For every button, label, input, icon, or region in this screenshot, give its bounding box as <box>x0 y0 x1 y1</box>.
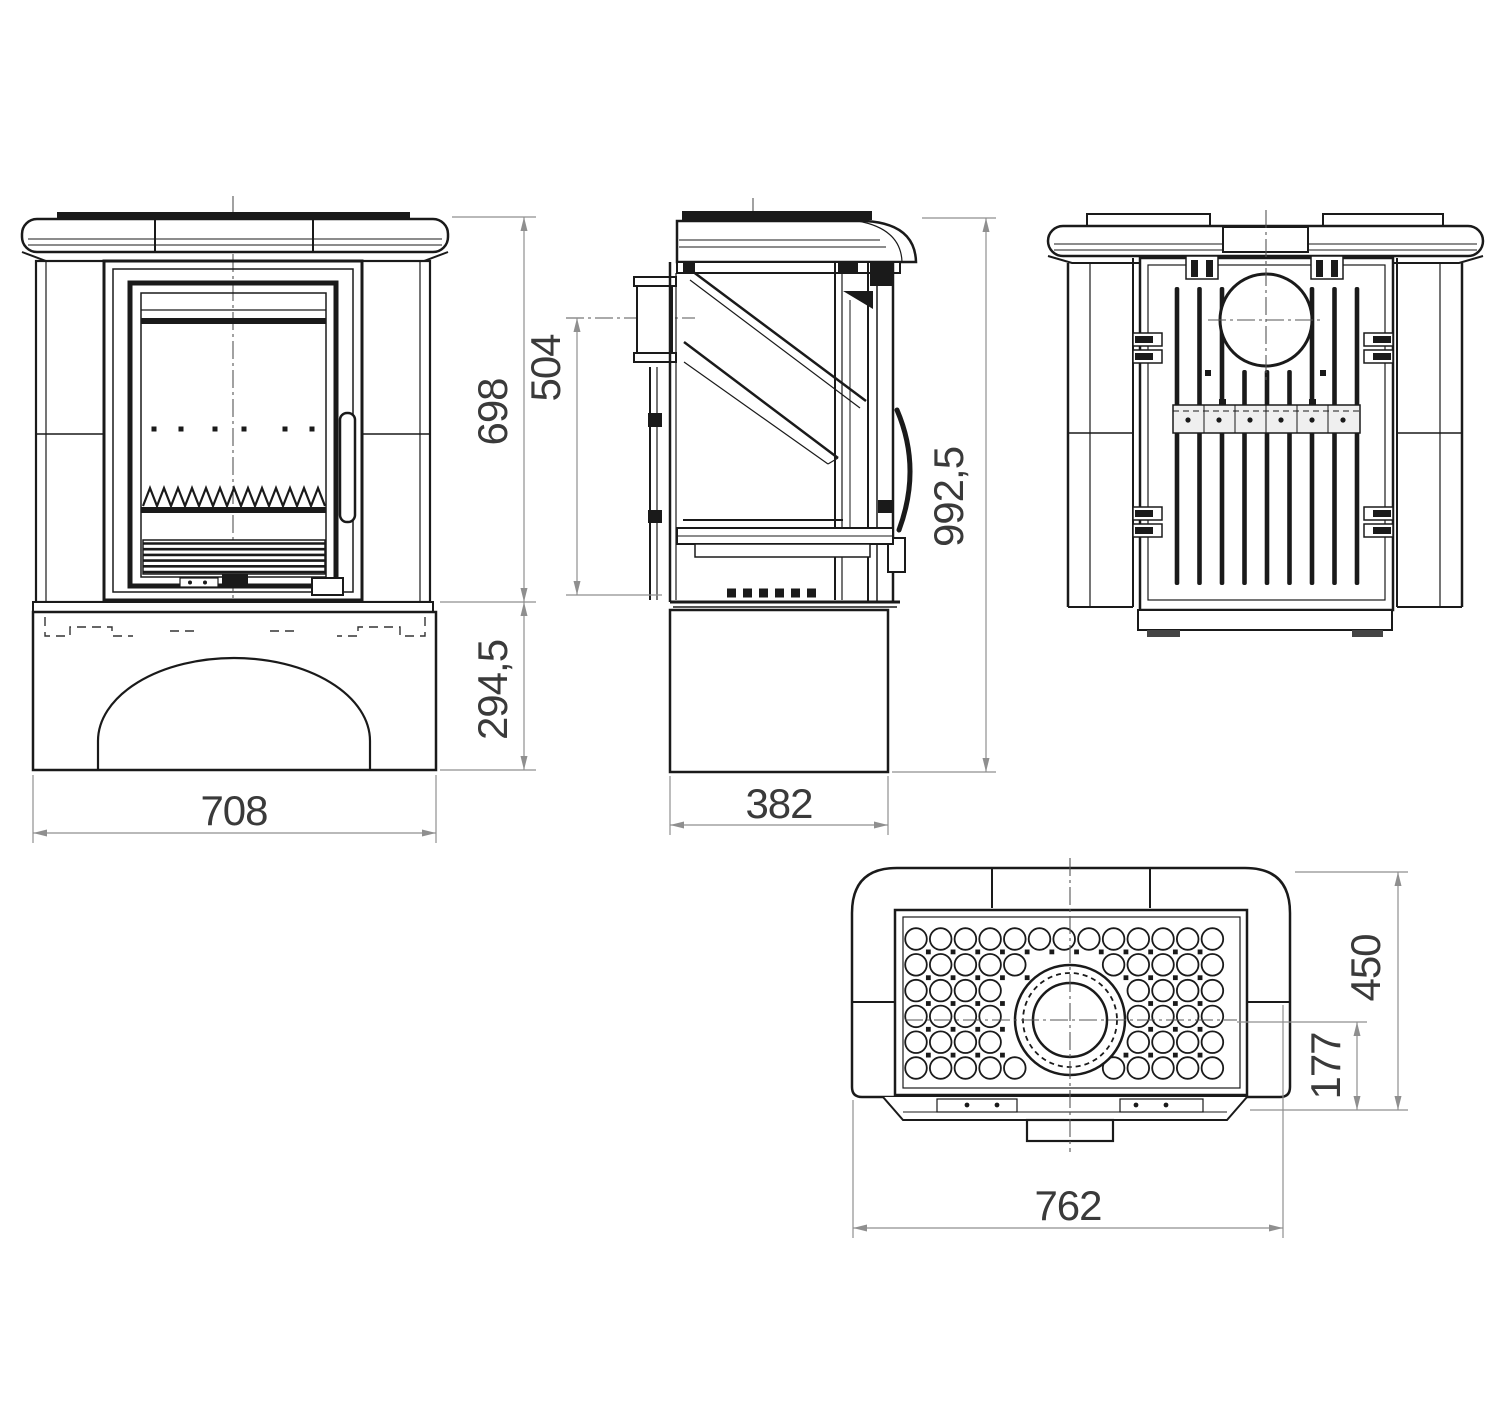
front-grille <box>143 540 325 574</box>
rear-base-plate <box>1138 610 1392 630</box>
side-cornice <box>677 221 916 262</box>
front-zigzag <box>143 488 325 506</box>
dim-top-flue-center-offset: 177 <box>1302 1032 1349 1099</box>
dim-side-depth: 382 <box>745 780 812 827</box>
front-door-handle <box>340 413 355 522</box>
front-cornice <box>22 219 448 252</box>
side-baffle <box>684 265 866 401</box>
side-pedestal <box>670 610 888 772</box>
dim-side-flue-center-height: 504 <box>522 334 569 402</box>
dim-front-width: 708 <box>200 787 267 834</box>
rear-view <box>1048 210 1483 637</box>
drawing-canvas: 698 294,5 708 504 992,5 382 450 177 762 <box>0 0 1500 1427</box>
dim-top-depth: 450 <box>1342 934 1389 1001</box>
front-base <box>33 612 436 770</box>
front-sill <box>33 602 433 612</box>
stove-technical-drawing: 698 294,5 708 504 992,5 382 450 177 762 <box>0 0 1500 1427</box>
front-latch <box>222 574 248 584</box>
side-view <box>566 198 916 772</box>
dim-front-base-height: 294,5 <box>469 640 516 740</box>
side-door-handle <box>897 410 910 530</box>
front-air-knob <box>180 578 218 587</box>
dim-front-upper-height: 698 <box>469 378 516 445</box>
front-view <box>22 196 448 770</box>
dim-top-width: 762 <box>1034 1182 1101 1229</box>
dim-side-total-height: 992,5 <box>925 447 972 547</box>
front-door-step <box>312 578 343 595</box>
top-view <box>852 858 1290 1152</box>
